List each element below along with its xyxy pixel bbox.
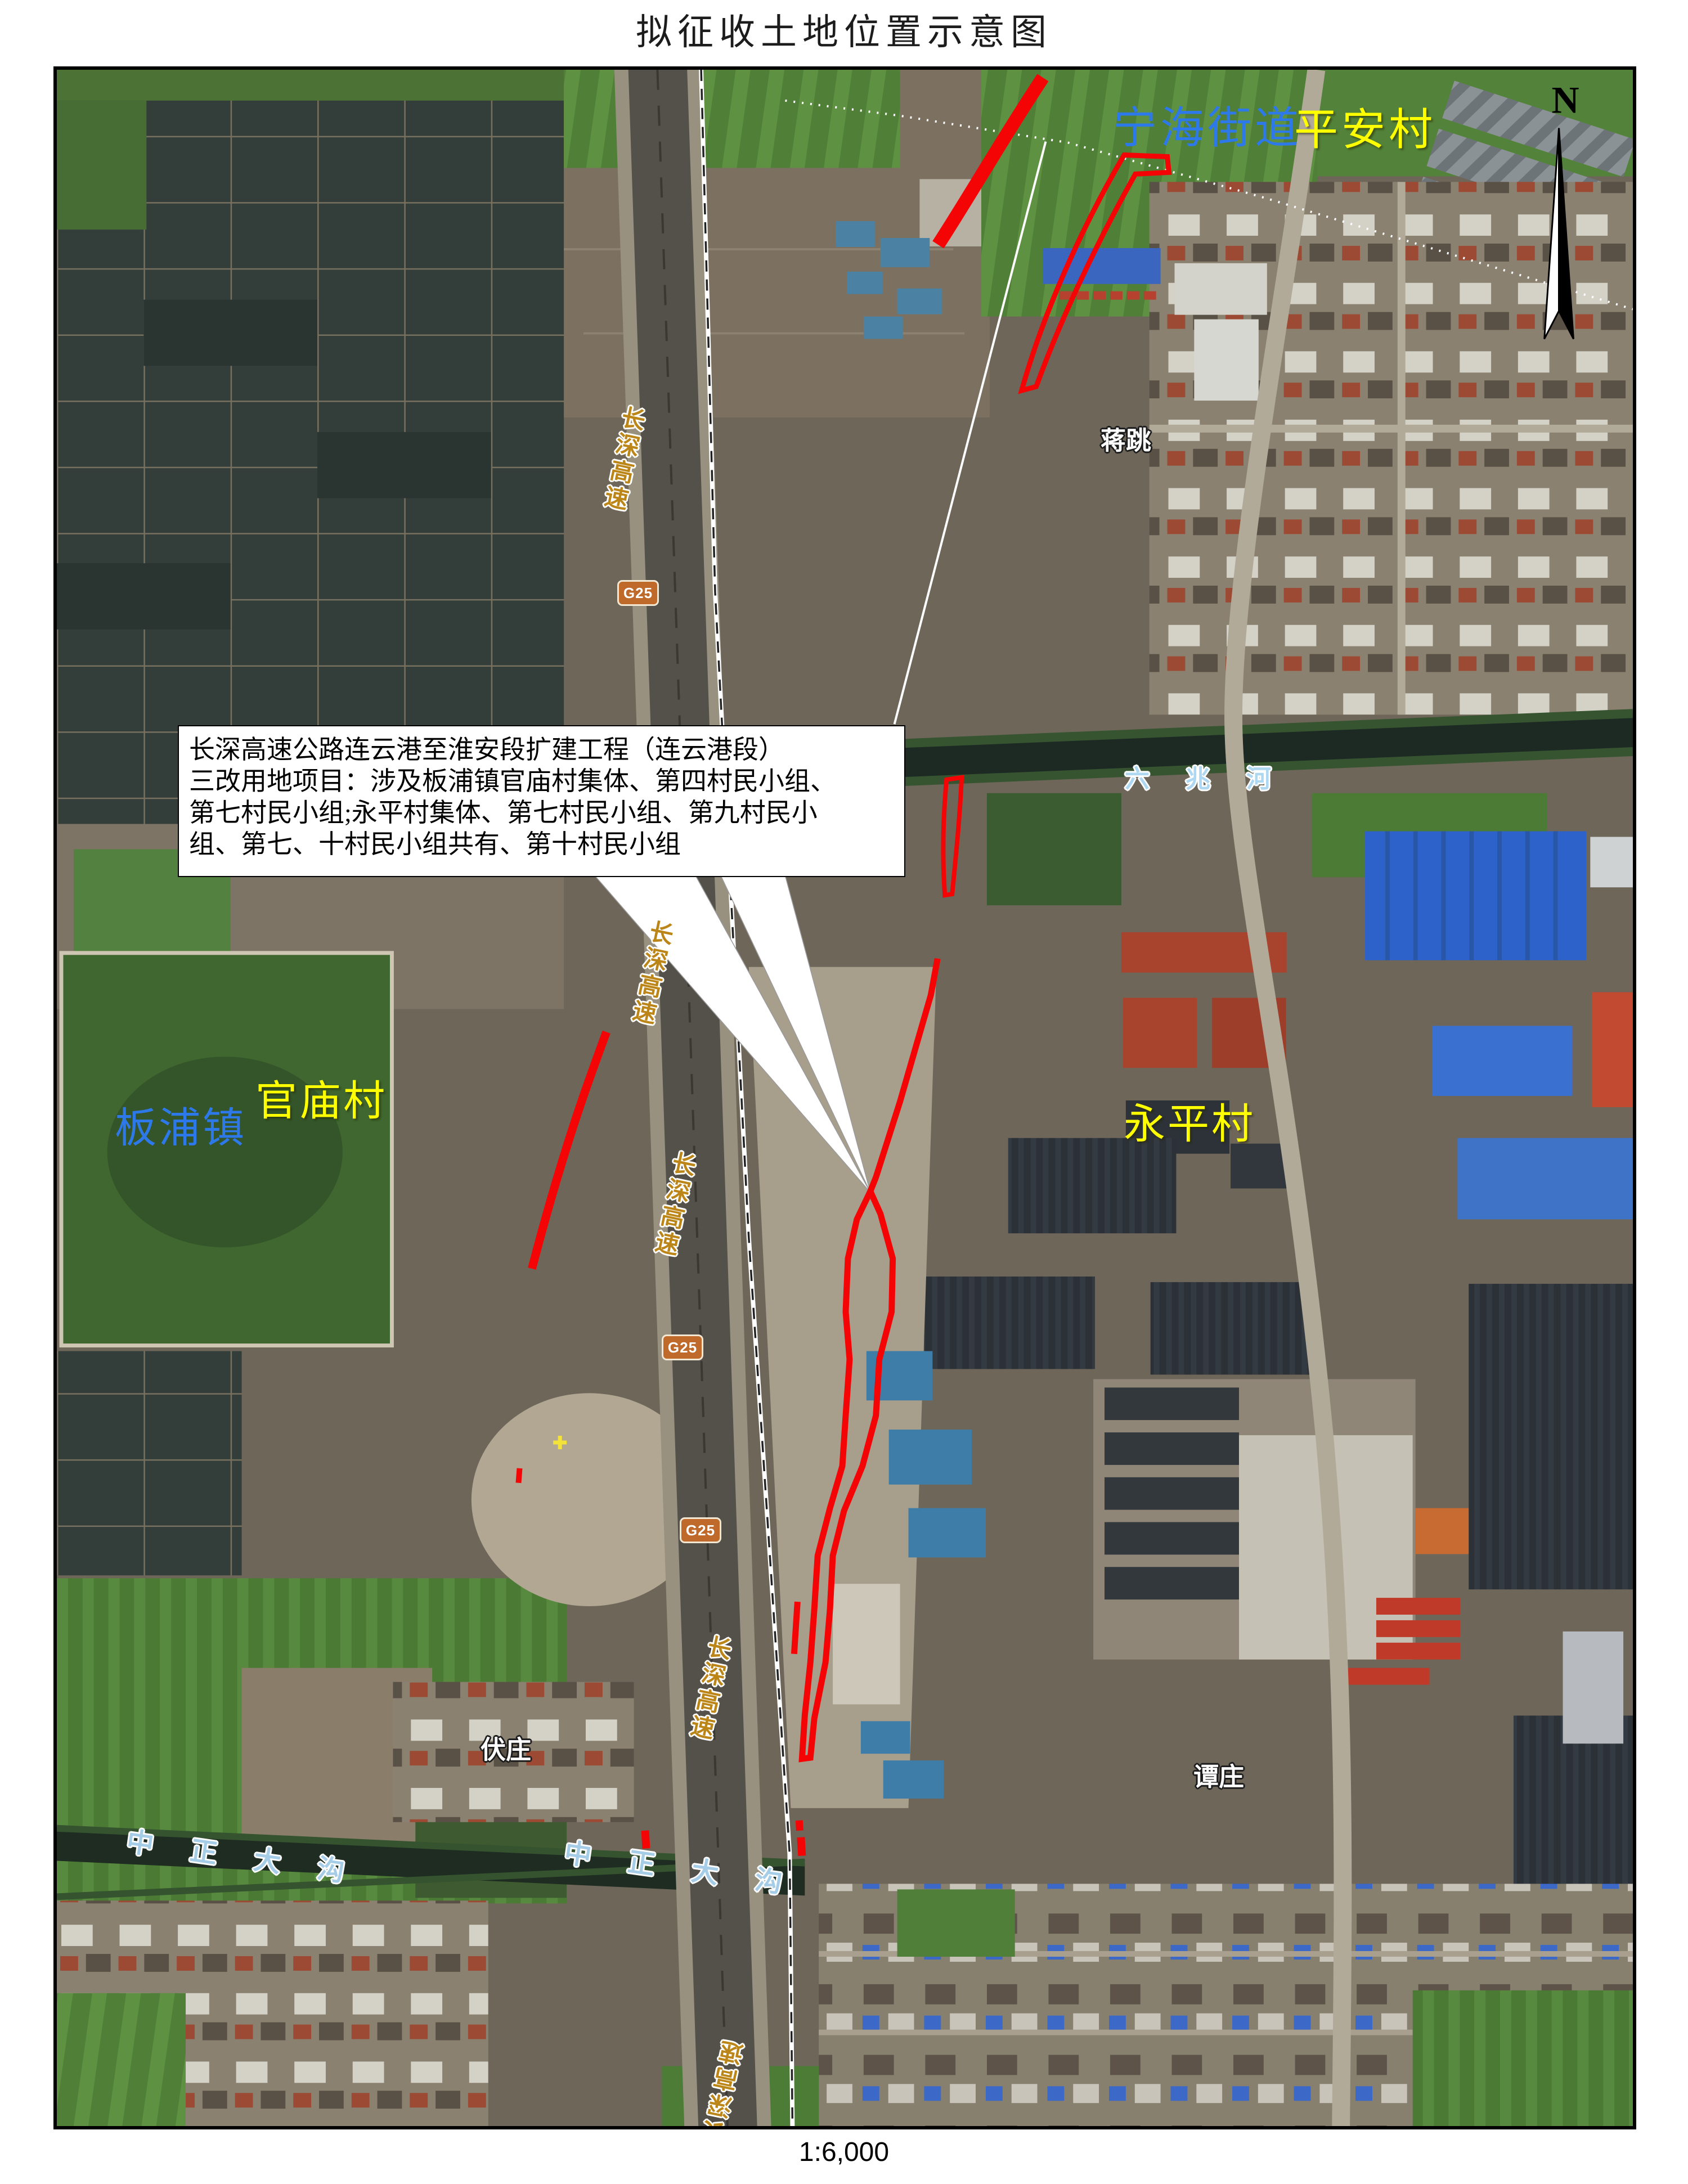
label-jiangtiao: 蒋跳 <box>1101 428 1151 453</box>
label-guanmiao-village: 官庙村 <box>255 1081 387 1122</box>
label-liuzhao-river: 六兆河 <box>1125 767 1307 792</box>
callout-line-4: 组、第七、十村民小组共有、第十村民小组 <box>189 829 894 860</box>
g25-route-shield-2: G25 <box>662 1334 703 1360</box>
parcel-tick-2 <box>799 1821 800 1831</box>
g25-route-shield-1: G25 <box>617 580 659 606</box>
callout-line-2: 三改用地项目：涉及板浦镇官庙村集体、第四村民小组、 <box>189 766 894 797</box>
parcel-tick-west <box>518 1468 519 1483</box>
project-callout-box: 长深高速公路连云港至淮安段扩建工程（连云港段） 三改用地项目：涉及板浦镇官庙村集… <box>178 725 905 877</box>
callout-line-1: 长深高速公路连云港至淮安段扩建工程（连云港段） <box>189 734 894 766</box>
callout-line-3: 第七村民小组;永平村集体、第七村民小组、第九村民小 <box>189 797 894 829</box>
scale-text: 1:6,000 <box>0 2137 1688 2168</box>
north-arrow-letter: N <box>1551 78 1579 123</box>
label-fuzhuang: 伏庄 <box>481 1737 531 1763</box>
map-canvas: 宁海街道 平安村 板浦镇 官庙村 永平村 六兆河 蒋跳 伏庄 谭庄 中正大沟 中… <box>53 66 1636 2129</box>
label-ninghai-street: 宁海街道 <box>1113 106 1302 150</box>
label-banpu-town: 板浦镇 <box>115 1108 246 1149</box>
label-pingan-village: 平安村 <box>1294 108 1436 152</box>
parcel-segment-south <box>794 1602 797 1654</box>
page: 拟征收土地位置示意图 <box>0 0 1688 2184</box>
label-tanzhuang: 谭庄 <box>1193 1764 1244 1790</box>
parcel-tick-3 <box>801 1837 802 1856</box>
page-title: 拟征收土地位置示意图 <box>0 3 1688 55</box>
parcel-tick-1 <box>645 1831 647 1849</box>
g25-route-shield-3: G25 <box>680 1517 721 1543</box>
label-yongping-village: 永平村 <box>1124 1104 1255 1145</box>
